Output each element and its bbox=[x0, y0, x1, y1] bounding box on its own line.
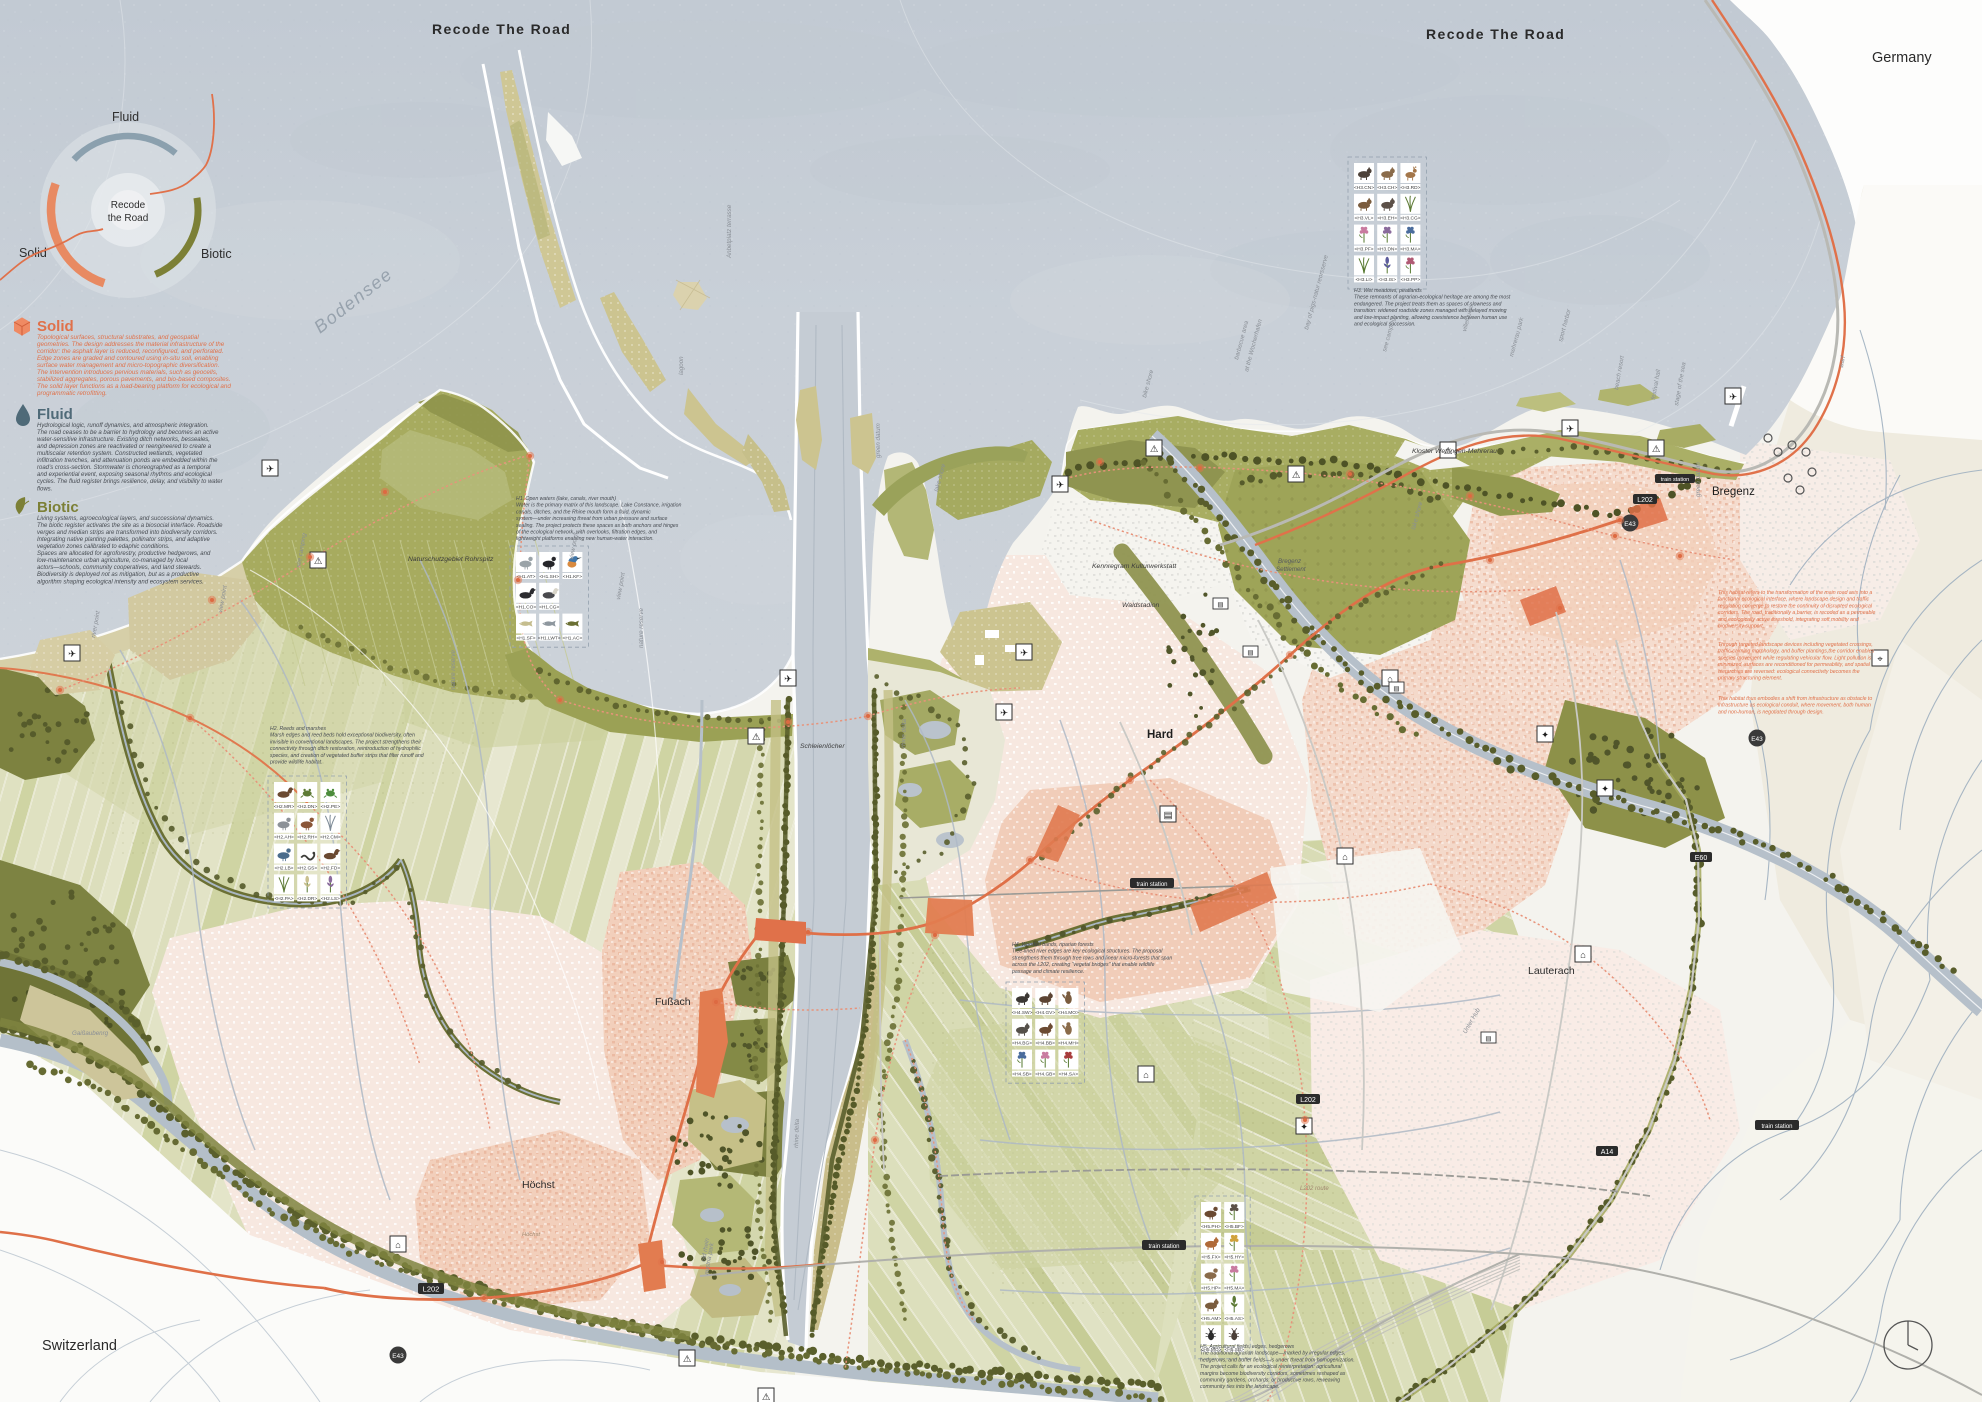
svg-text:<H2.DR>: <H2.DR> bbox=[297, 896, 317, 902]
svg-text:<H2.PE>: <H2.PE> bbox=[321, 804, 341, 810]
svg-text:Settlement: Settlement bbox=[1276, 566, 1306, 573]
svg-text:✈: ✈ bbox=[1056, 480, 1064, 490]
svg-text:Recode: Recode bbox=[111, 200, 146, 211]
svg-text:<H2.DN>: <H2.DN> bbox=[297, 804, 317, 810]
svg-text:<H1.SF>: <H1.SF> bbox=[516, 635, 535, 641]
svg-text:✈: ✈ bbox=[68, 649, 76, 659]
svg-text:Living systems, agroecological: Living systems, agroecological layers, a… bbox=[37, 516, 223, 585]
svg-text:<H4.MO>: <H4.MO> bbox=[1058, 1010, 1079, 1016]
svg-text:<H5.FX>: <H5.FX> bbox=[1201, 1255, 1220, 1261]
svg-text:Kennregram Kulturwerkstatt: Kennregram Kulturwerkstatt bbox=[1092, 563, 1177, 570]
svg-text:train station: train station bbox=[1148, 1244, 1179, 1250]
svg-text:⚠: ⚠ bbox=[1150, 444, 1158, 454]
svg-text:<H1.CG>: <H1.CG> bbox=[539, 605, 559, 611]
svg-text:Recode The Road: Recode The Road bbox=[1426, 26, 1565, 42]
svg-text:L202: L202 bbox=[1300, 1097, 1316, 1104]
svg-text:Topological surfaces, structur: Topological surfaces, structural substra… bbox=[36, 334, 231, 397]
svg-text:⚠: ⚠ bbox=[752, 732, 760, 742]
svg-text:<H1.KF>: <H1.KF> bbox=[563, 574, 582, 580]
svg-text:<H4.SA>: <H4.SA> bbox=[1059, 1071, 1079, 1077]
svg-text:<H3.VL>: <H3.VL> bbox=[1355, 216, 1374, 222]
svg-text:Germany: Germany bbox=[1872, 50, 1932, 66]
svg-text:nature reserve: nature reserve bbox=[450, 650, 457, 690]
svg-text:<H4.GB>: <H4.GB> bbox=[1035, 1071, 1055, 1077]
svg-text:Schleienlöcher: Schleienlöcher bbox=[800, 743, 845, 750]
svg-text:<H2.FD>: <H2.FD> bbox=[321, 865, 341, 871]
svg-text:✈: ✈ bbox=[1020, 648, 1028, 658]
svg-text:Höchst: Höchst bbox=[522, 1232, 540, 1238]
svg-text:<H5.AM>: <H5.AM> bbox=[1201, 1316, 1221, 1322]
svg-text:rhine delta: rhine delta bbox=[900, 718, 908, 748]
svg-text:Anbetplatz terrasse: Anbetplatz terrasse bbox=[726, 204, 733, 259]
svg-text:Hydrological logic, runoff dyn: Hydrological logic, runoff dynamics, and… bbox=[37, 423, 224, 492]
svg-text:<H4.SW>: <H4.SW> bbox=[1012, 1010, 1033, 1016]
svg-text:<H5.MA>: <H5.MA> bbox=[1224, 1285, 1244, 1291]
svg-text:<H2.GS>: <H2.GS> bbox=[297, 865, 317, 871]
svg-text:<H3.MA>: <H3.MA> bbox=[1400, 246, 1420, 252]
svg-text:⚠: ⚠ bbox=[1652, 444, 1660, 454]
svg-text:Solid: Solid bbox=[19, 246, 47, 260]
svg-text:Gaißaubenrg: Gaißaubenrg bbox=[72, 1030, 109, 1037]
svg-text:<H2.LB>: <H2.LB> bbox=[275, 865, 294, 871]
svg-text:<H1.LWT>: <H1.LWT> bbox=[538, 635, 561, 641]
svg-text:Switzerland: Switzerland bbox=[42, 1338, 117, 1354]
svg-text:<H4.SB>: <H4.SB> bbox=[1012, 1071, 1032, 1077]
svg-text:Recode The Road: Recode The Road bbox=[432, 21, 571, 37]
svg-text:Biotic: Biotic bbox=[37, 499, 79, 516]
svg-text:▤: ▤ bbox=[1393, 686, 1399, 693]
svg-text:✈: ✈ bbox=[266, 464, 274, 474]
svg-text:<H2.RH>: <H2.RH> bbox=[297, 835, 317, 841]
svg-text:⚠: ⚠ bbox=[762, 1392, 770, 1402]
svg-text:Bregenz: Bregenz bbox=[1278, 558, 1302, 565]
svg-text:<H3.CG>: <H3.CG> bbox=[1400, 216, 1420, 222]
svg-text:A14: A14 bbox=[1601, 1149, 1614, 1156]
svg-text:<H3.RD>: <H3.RD> bbox=[1400, 185, 1420, 191]
svg-text:✈: ✈ bbox=[1729, 392, 1737, 402]
svg-text:▤: ▤ bbox=[1247, 650, 1253, 657]
svg-text:green datum: green datum bbox=[875, 423, 882, 458]
svg-text:Fußach: Fußach bbox=[655, 996, 691, 1008]
svg-text:the Road: the Road bbox=[108, 213, 149, 224]
svg-text:L202: L202 bbox=[423, 1285, 440, 1294]
svg-text:✈: ✈ bbox=[784, 674, 792, 684]
svg-text:H5. Agricultural fields, edges: H5. Agricultural fields, edges, hedgerow… bbox=[1200, 1344, 1355, 1390]
svg-text:▤: ▤ bbox=[1217, 602, 1223, 609]
svg-text:<H1.AC>: <H1.AC> bbox=[563, 635, 583, 641]
svg-text:<H5.HP>: <H5.HP> bbox=[1201, 1285, 1221, 1291]
svg-text:<H5.HY>: <H5.HY> bbox=[1224, 1255, 1244, 1261]
svg-text:L202 route: L202 route bbox=[1300, 1186, 1329, 1192]
svg-text:<H2.PA>: <H2.PA> bbox=[274, 896, 293, 902]
svg-text:<H2.MR>: <H2.MR> bbox=[274, 804, 295, 810]
svg-text:<H5.PH>: <H5.PH> bbox=[1201, 1224, 1221, 1230]
svg-text:green datum: green datum bbox=[1695, 462, 1702, 497]
svg-text:<H2.LS>: <H2.LS> bbox=[321, 896, 340, 902]
svg-text:▤: ▤ bbox=[1164, 810, 1173, 820]
svg-text:lagoon: lagoon bbox=[678, 356, 685, 375]
svg-text:nature reserve: nature reserve bbox=[638, 608, 645, 648]
svg-text:E43: E43 bbox=[1751, 736, 1763, 743]
svg-text:<H1.SH>: <H1.SH> bbox=[539, 574, 559, 580]
svg-text:<H4.BB>: <H4.BB> bbox=[1035, 1041, 1055, 1047]
svg-text:<H3.CN>: <H3.CN> bbox=[1354, 185, 1374, 191]
svg-text:<H4.MH>: <H4.MH> bbox=[1058, 1041, 1079, 1047]
svg-text:✦: ✦ bbox=[1601, 784, 1609, 794]
svg-text:<H2.AH>: <H2.AH> bbox=[274, 835, 294, 841]
svg-text:<H3.IS>: <H3.IS> bbox=[1378, 277, 1396, 283]
svg-text:<H3.PP>: <H3.PP> bbox=[1401, 277, 1421, 283]
svg-text:train station: train station bbox=[1136, 882, 1167, 888]
svg-text:<H3.DN>: <H3.DN> bbox=[1377, 246, 1397, 252]
svg-text:<H3.LI>: <H3.LI> bbox=[1355, 277, 1372, 283]
svg-text:<H3.PF>: <H3.PF> bbox=[1354, 246, 1373, 252]
svg-text:E43: E43 bbox=[1624, 521, 1636, 528]
svg-text:⌂: ⌂ bbox=[395, 1240, 401, 1250]
svg-text:⌂: ⌂ bbox=[1342, 852, 1348, 862]
svg-text:<H5.BF>: <H5.BF> bbox=[1225, 1224, 1244, 1230]
svg-text:⚠: ⚠ bbox=[1292, 470, 1300, 480]
svg-text:E60: E60 bbox=[1695, 855, 1708, 862]
svg-text:Fluid: Fluid bbox=[37, 406, 73, 423]
svg-text:rhine delta: rhine delta bbox=[793, 1118, 801, 1148]
svg-text:⌂: ⌂ bbox=[1580, 950, 1586, 960]
svg-text:Lauterach: Lauterach bbox=[1528, 965, 1575, 977]
svg-text:✈: ✈ bbox=[1000, 708, 1008, 718]
svg-text:<H3.EH>: <H3.EH> bbox=[1377, 216, 1397, 222]
svg-text:Naturschutzgebiet Rohrspitz: Naturschutzgebiet Rohrspitz bbox=[408, 556, 494, 563]
svg-text:Fluid: Fluid bbox=[112, 110, 139, 124]
svg-text:Höchst: Höchst bbox=[522, 1179, 555, 1191]
svg-text:✦: ✦ bbox=[1541, 730, 1549, 740]
svg-text:✈: ✈ bbox=[1566, 424, 1574, 434]
svg-text:E43: E43 bbox=[392, 1353, 404, 1360]
svg-text:H1. Open waters (lake, canals,: H1. Open waters (lake, canals, river mou… bbox=[516, 496, 682, 542]
svg-text:Hard: Hard bbox=[1147, 729, 1173, 741]
svg-text:train station: train station bbox=[1761, 1124, 1792, 1130]
svg-text:Solid: Solid bbox=[37, 318, 74, 335]
svg-text:⚠: ⚠ bbox=[683, 1354, 691, 1364]
svg-text:⌂: ⌂ bbox=[1143, 1070, 1149, 1080]
svg-text:Bregenz: Bregenz bbox=[1712, 486, 1755, 498]
svg-text:<H2.CM>: <H2.CM> bbox=[320, 835, 341, 841]
svg-text:L202: L202 bbox=[1637, 497, 1653, 504]
svg-text:Waldstadion: Waldstadion bbox=[1122, 602, 1159, 609]
svg-text:train station: train station bbox=[1661, 477, 1689, 483]
svg-text:▤: ▤ bbox=[1485, 1036, 1491, 1043]
svg-text:⌖: ⌖ bbox=[1877, 654, 1882, 664]
svg-text:<H4.BG>: <H4.BG> bbox=[1012, 1041, 1032, 1047]
svg-text:<H1.CO>: <H1.CO> bbox=[516, 605, 536, 611]
svg-text:Biotic: Biotic bbox=[201, 247, 232, 261]
svg-text:<H3.CH>: <H3.CH> bbox=[1377, 185, 1397, 191]
svg-text:Kloster Wettingen-Mehrerau: Kloster Wettingen-Mehrerau bbox=[1412, 448, 1497, 455]
svg-text:<H5.AS>: <H5.AS> bbox=[1224, 1316, 1244, 1322]
svg-text:⚠: ⚠ bbox=[314, 556, 322, 566]
svg-text:<H4.GV>: <H4.GV> bbox=[1035, 1010, 1055, 1016]
